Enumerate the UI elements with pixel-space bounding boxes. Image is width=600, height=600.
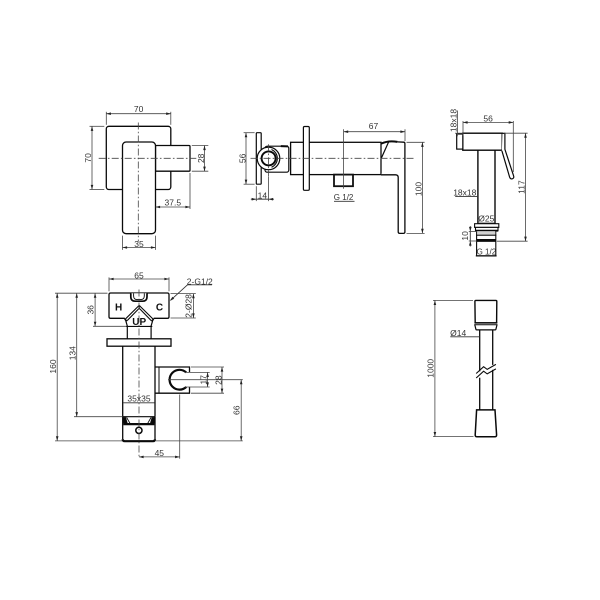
svg-text:45: 45: [155, 448, 165, 458]
svg-text:66: 66: [231, 405, 241, 415]
svg-text:18x18: 18x18: [453, 187, 476, 197]
svg-text:70: 70: [134, 104, 144, 114]
svg-text:36: 36: [86, 305, 96, 315]
svg-text:100: 100: [413, 182, 423, 196]
svg-text:1000: 1000: [425, 359, 435, 378]
svg-text:65: 65: [134, 270, 144, 280]
svg-text:160: 160: [48, 359, 58, 373]
svg-text:2-Ø28: 2-Ø28: [184, 294, 194, 318]
svg-text:G 1/2: G 1/2: [477, 247, 497, 256]
svg-text:C: C: [156, 302, 163, 313]
svg-text:70: 70: [83, 153, 93, 163]
svg-text:117: 117: [516, 180, 526, 194]
svg-text:10: 10: [460, 231, 470, 241]
svg-text:G 1/2: G 1/2: [334, 193, 354, 202]
svg-text:28: 28: [196, 153, 206, 163]
svg-text:56: 56: [483, 113, 493, 123]
svg-text:35: 35: [134, 239, 144, 249]
svg-text:56: 56: [237, 153, 247, 163]
svg-text:H: H: [115, 302, 122, 313]
svg-text:Ø25: Ø25: [478, 214, 494, 224]
svg-text:17: 17: [198, 375, 208, 385]
svg-text:67: 67: [369, 121, 379, 131]
svg-text:14: 14: [258, 191, 268, 201]
svg-text:28: 28: [213, 375, 223, 385]
svg-text:134: 134: [67, 346, 77, 360]
svg-text:18x18: 18x18: [448, 109, 458, 132]
svg-text:37.5: 37.5: [165, 198, 182, 208]
